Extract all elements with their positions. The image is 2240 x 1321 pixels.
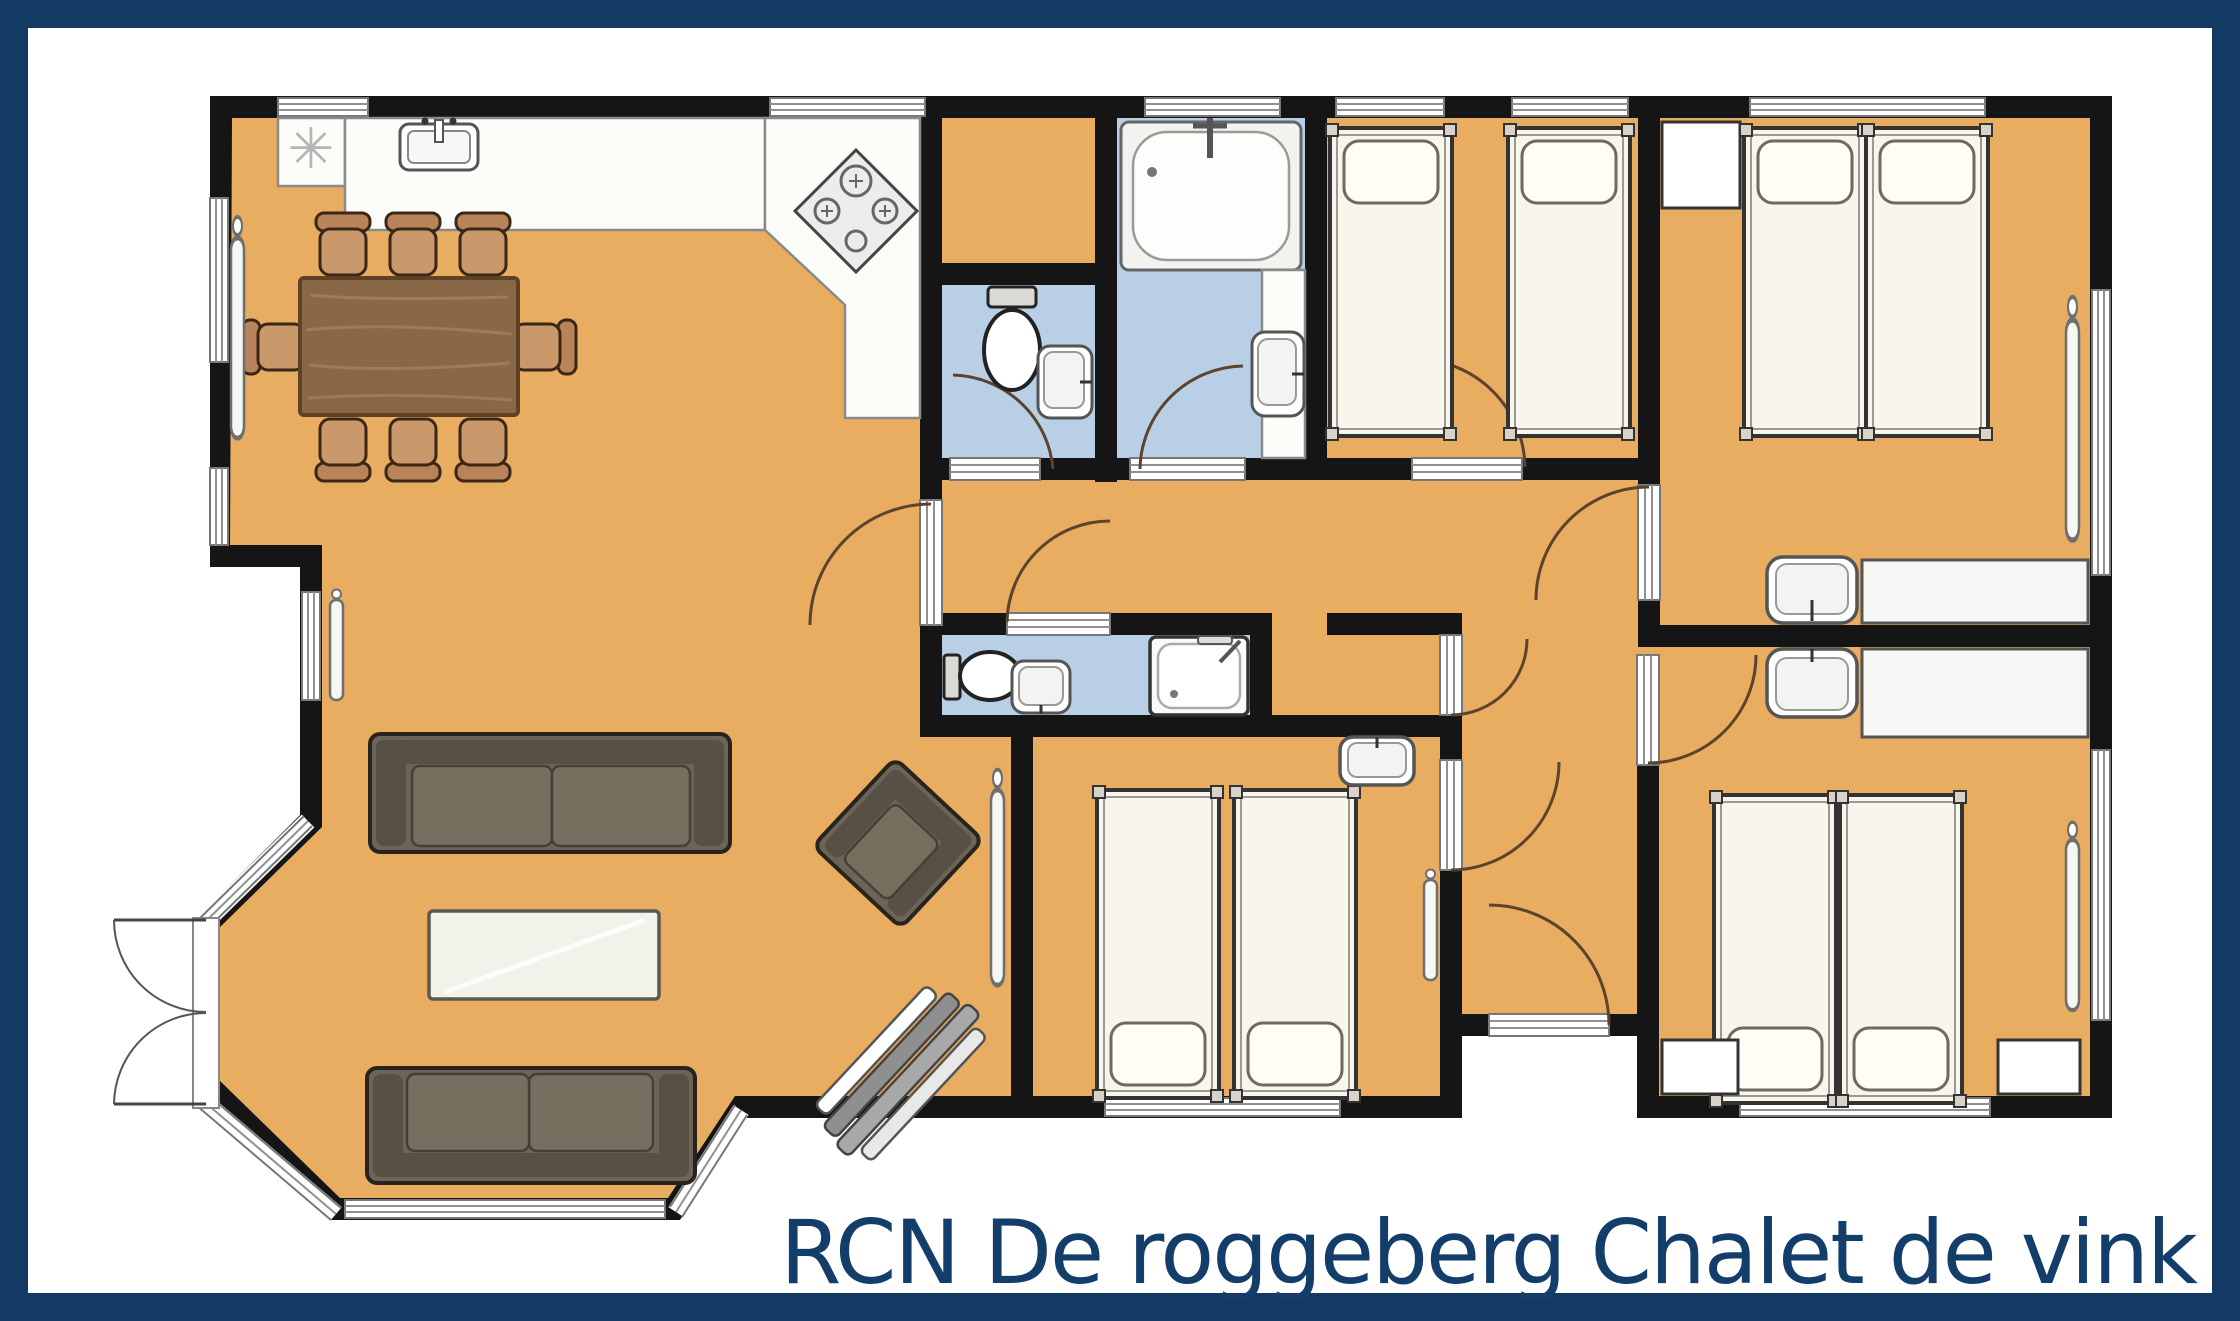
radiator xyxy=(991,770,1004,985)
single-bed xyxy=(1862,124,1992,440)
window xyxy=(210,468,228,545)
single-bed xyxy=(1504,124,1634,440)
single-bed xyxy=(1230,786,1360,1102)
wall-segment xyxy=(920,118,942,500)
french-doors xyxy=(114,918,219,1108)
washbasin xyxy=(1340,737,1414,785)
dining-chair xyxy=(386,419,440,481)
wall-segment xyxy=(1250,635,1272,715)
wall-segment xyxy=(1095,118,1117,482)
window xyxy=(1145,98,1280,116)
window xyxy=(1512,98,1628,116)
dining-chair xyxy=(316,213,370,275)
radiator xyxy=(2066,822,2079,1010)
cupboard xyxy=(1662,1040,1738,1094)
window xyxy=(1750,98,1985,116)
radiator xyxy=(330,590,343,701)
toilet-icon xyxy=(984,310,1040,390)
freezer-icon: ✳ xyxy=(288,117,335,182)
floorplan-drawing: ✳ xyxy=(0,0,2240,1321)
wall-segment xyxy=(1637,765,1659,1118)
radiator xyxy=(1424,870,1437,981)
window xyxy=(2092,290,2110,575)
dining-chair xyxy=(316,419,370,481)
wall-segment xyxy=(942,263,1095,285)
wall-segment xyxy=(1638,600,1660,647)
coffee-table xyxy=(429,911,659,999)
single-bed xyxy=(1093,786,1223,1102)
washbasin xyxy=(1767,557,1857,623)
wall-segment xyxy=(1327,458,1412,480)
window xyxy=(302,592,320,700)
dining-chair xyxy=(514,320,576,374)
desk xyxy=(1862,649,2088,737)
dining-chair xyxy=(242,320,304,374)
desk xyxy=(1862,560,2088,623)
wall-segment xyxy=(1638,118,1660,485)
dining-chair xyxy=(386,213,440,275)
wall-segment xyxy=(1305,118,1327,480)
window xyxy=(345,1200,665,1218)
window xyxy=(1336,98,1444,116)
shower xyxy=(1150,636,1248,715)
washbasin xyxy=(1252,332,1304,416)
wall-segment xyxy=(1440,870,1462,1118)
wall-segment xyxy=(942,458,950,480)
toilet-cistern xyxy=(988,287,1036,307)
wall-segment xyxy=(1011,737,1033,1096)
washbasin xyxy=(1012,661,1070,714)
dining-chair xyxy=(456,419,510,481)
window xyxy=(2092,750,2110,1020)
wardrobe xyxy=(1662,122,1740,208)
wall-segment xyxy=(1327,613,1440,635)
sofa-small xyxy=(367,1068,695,1183)
plan-title: RCN De roggeberg Chalet de vink xyxy=(780,1209,2196,1297)
dining-chair xyxy=(456,213,510,275)
radiator xyxy=(2066,297,2079,540)
single-bed xyxy=(1740,124,1870,440)
cupboard xyxy=(1998,1040,2080,1094)
radiator xyxy=(231,217,244,438)
washbasin xyxy=(1038,346,1092,418)
toilet-cistern xyxy=(944,655,960,699)
single-bed xyxy=(1836,791,1966,1107)
wall-segment xyxy=(1660,625,2090,647)
wall-segment xyxy=(1440,1014,1489,1036)
sofa-large xyxy=(370,734,730,852)
wall-segment xyxy=(1440,613,1462,635)
window xyxy=(210,198,228,362)
window xyxy=(278,98,368,116)
single-bed xyxy=(1326,124,1456,440)
kitchen-sink xyxy=(400,118,478,171)
window xyxy=(770,98,925,116)
wall-segment xyxy=(942,613,1007,635)
bathtub xyxy=(1121,118,1301,270)
wall-segment xyxy=(1609,1014,1659,1036)
floorplan-page: ✳ xyxy=(0,0,2240,1321)
wall-segment xyxy=(920,715,1462,737)
washbasin xyxy=(1767,649,1857,717)
wall-segment xyxy=(1110,613,1272,635)
wall-segment xyxy=(1440,715,1462,760)
